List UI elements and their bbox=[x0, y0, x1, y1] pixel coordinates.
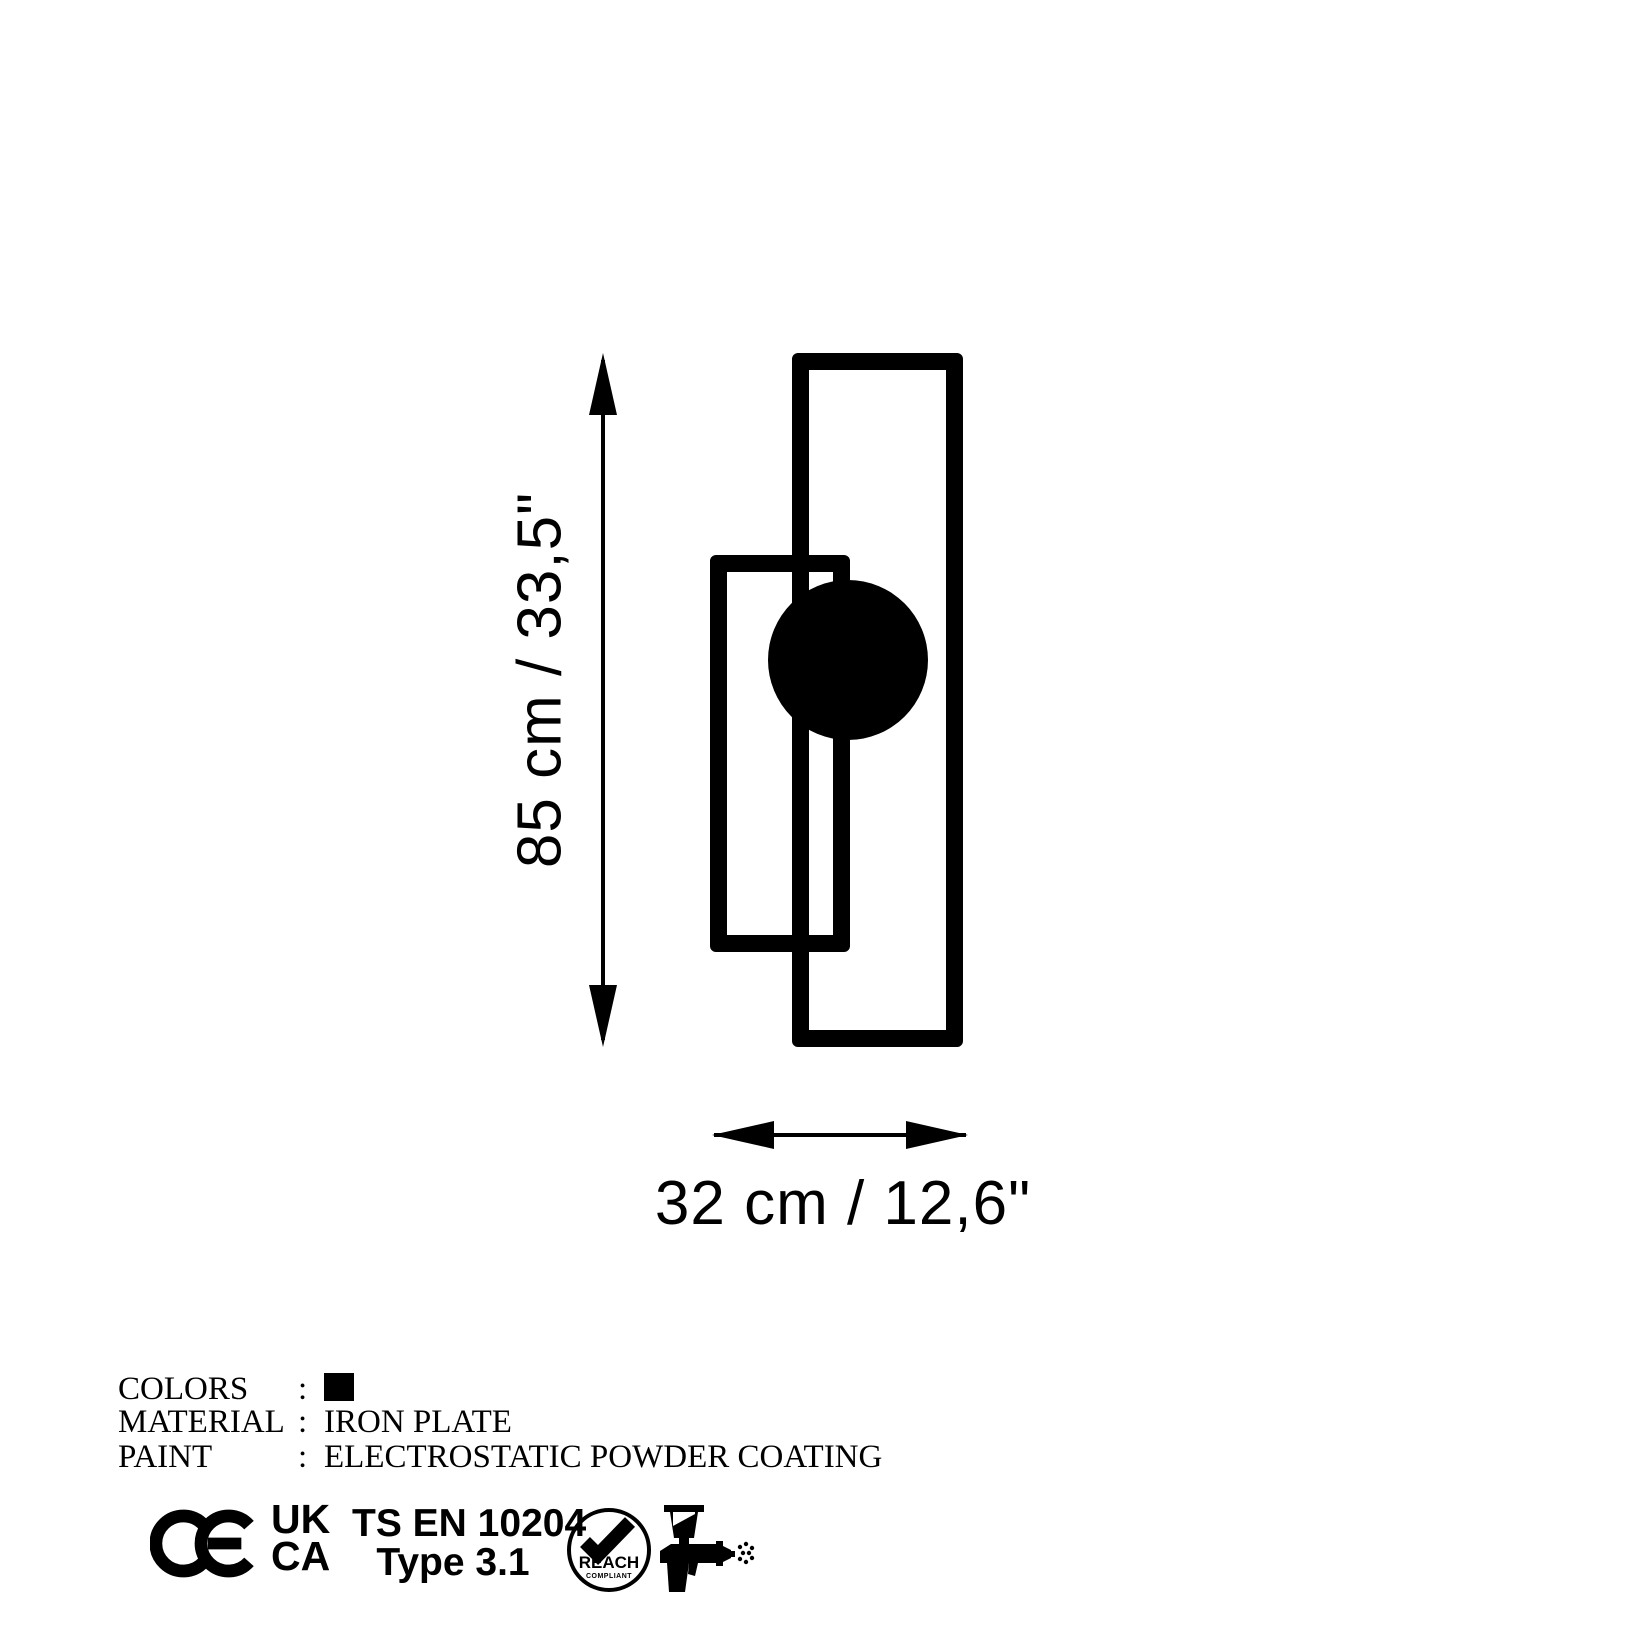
ukca-bottom: CA bbox=[271, 1538, 330, 1575]
spec-colon: : bbox=[298, 1372, 324, 1407]
spec-row-material: MATERIAL : IRON PLATE bbox=[118, 1405, 882, 1440]
height-dimension-label: 85 cm / 33,5" bbox=[505, 492, 576, 868]
spec-label: COLORS bbox=[118, 1372, 298, 1407]
reach-sub-label: COMPLIANT bbox=[571, 1573, 647, 1580]
spray-gun-icon bbox=[658, 1502, 756, 1601]
arrow-left-icon bbox=[712, 1121, 774, 1149]
spec-label: PAINT bbox=[118, 1440, 298, 1475]
circle-shape bbox=[768, 580, 928, 740]
reach-label: REACH bbox=[571, 1553, 647, 1573]
arrow-up-icon bbox=[589, 353, 617, 415]
ce-mark-icon bbox=[150, 1508, 260, 1584]
spec-value: ELECTROSTATIC POWDER COATING bbox=[324, 1440, 882, 1475]
ukca-mark: UK CA bbox=[271, 1501, 330, 1575]
spec-colon: : bbox=[298, 1405, 324, 1440]
color-swatch bbox=[324, 1373, 354, 1401]
spec-colon: : bbox=[298, 1440, 324, 1475]
spec-label: MATERIAL bbox=[118, 1405, 298, 1440]
spec-list: COLORS : MATERIAL : IRON PLATE PAINT : E… bbox=[118, 1370, 882, 1475]
spec-value: IRON PLATE bbox=[324, 1405, 882, 1440]
product-dimension-diagram: 85 cm / 33,5" 32 cm / 12,6" COLORS : MAT… bbox=[0, 0, 1648, 1648]
spec-row-colors: COLORS : bbox=[118, 1370, 882, 1405]
width-dimension-label: 32 cm / 12,6" bbox=[655, 1168, 1031, 1239]
arrow-right-icon bbox=[906, 1121, 968, 1149]
height-dimension-line bbox=[601, 360, 605, 1040]
spec-row-paint: PAINT : ELECTROSTATIC POWDER COATING bbox=[118, 1440, 882, 1475]
standard-certification: TS EN 10204 Type 3.1 bbox=[352, 1504, 554, 1582]
arrow-down-icon bbox=[589, 985, 617, 1047]
standard-name: TS EN 10204 bbox=[352, 1504, 554, 1544]
standard-type: Type 3.1 bbox=[352, 1544, 554, 1582]
reach-compliant-badge: REACH COMPLIANT bbox=[567, 1508, 651, 1592]
